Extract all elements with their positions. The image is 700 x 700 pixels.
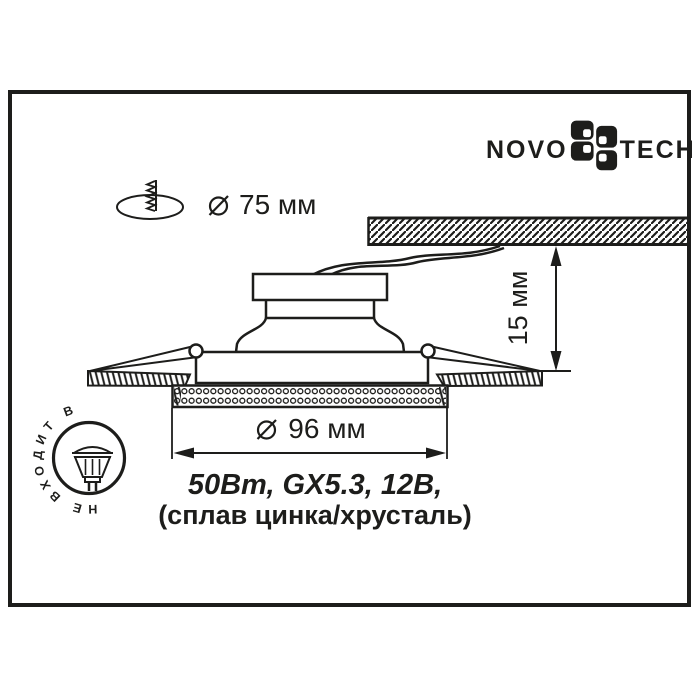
brand-name-right: TECH: [620, 138, 696, 163]
brand-name-left: NOVO: [486, 138, 568, 163]
clover-icon: [570, 111, 618, 172]
material-spec-text: (сплав цинка/хрусталь): [125, 501, 505, 529]
cutout-spec: 75 мм: [110, 178, 316, 232]
lamp-spec-text: 50Вт, GX5.3, 12В,: [135, 470, 495, 500]
depth-label: 15 мм: [497, 248, 539, 368]
outer-diameter-label: 96 мм: [288, 415, 365, 443]
outer-diameter-spec: 96 мм: [170, 415, 450, 443]
screw-hole-icon: [110, 178, 194, 232]
brand-logo: NOVO TECH: [486, 111, 696, 172]
cutout-diameter-label: 75 мм: [239, 191, 316, 219]
diameter-icon: [254, 416, 280, 442]
cutout-diameter: 75 мм: [206, 191, 316, 219]
technical-drawing-page: NOVO TECH: [0, 0, 700, 700]
diameter-icon: [206, 192, 232, 218]
not-included-stamp: НЕ ВХОДИТ В КОМПЛЕКТ: [28, 396, 152, 520]
